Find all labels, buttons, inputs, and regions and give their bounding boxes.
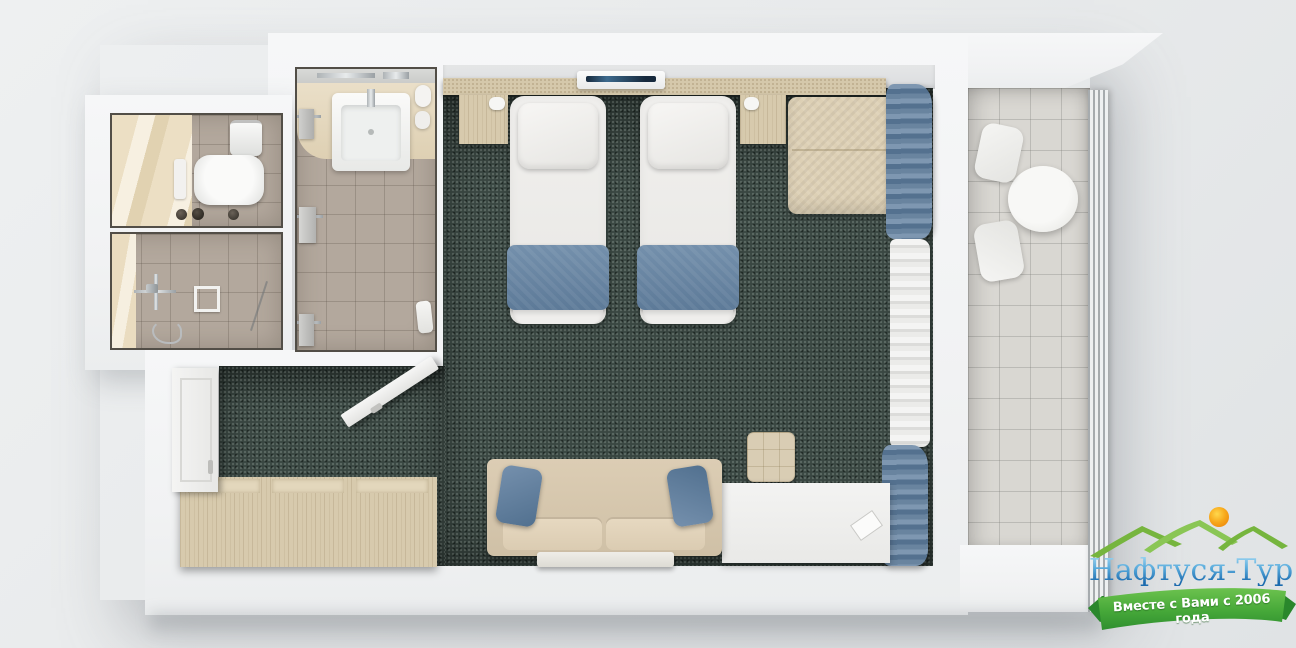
wall-balcony-bottom — [960, 545, 1092, 612]
air-conditioner — [577, 71, 665, 89]
toilet-paper-holder — [174, 159, 186, 199]
toilet-cistern — [230, 120, 262, 156]
faucet — [367, 89, 375, 107]
nightstand-left — [459, 95, 508, 144]
towel — [299, 314, 314, 346]
toilet-bowl — [194, 155, 264, 205]
wardrobe-shelf-top — [272, 479, 344, 493]
basin-drain — [368, 129, 374, 135]
shower-wall-panel — [112, 234, 136, 348]
curtain-blue-upper — [886, 84, 932, 239]
toiletry-jar — [176, 209, 187, 220]
shower-glass-door — [250, 281, 268, 331]
floorplan-canvas: Нафтуся-Тур Вместе с Вами с 2006 года — [0, 0, 1296, 648]
rolled-towel — [415, 111, 430, 129]
armchair — [788, 97, 895, 214]
floor-drain — [194, 286, 220, 312]
desk — [722, 483, 890, 563]
shower-mixer — [146, 284, 158, 293]
twin-bed-left — [510, 96, 606, 324]
sun-icon — [1209, 507, 1229, 527]
wardrobe — [180, 477, 437, 567]
towel — [299, 109, 314, 139]
sofa-pillow-right — [666, 464, 715, 528]
rolled-towel — [415, 85, 431, 107]
logo-brand-title: Нафтуся-Тур — [1086, 556, 1296, 586]
toiletry-jar — [228, 209, 239, 220]
logo-ribbon: Вместе с Вами с 2006 года — [1086, 584, 1296, 642]
blanket — [507, 245, 609, 310]
towel — [299, 207, 316, 243]
sofa — [487, 459, 722, 556]
phone — [744, 97, 759, 110]
ottoman — [747, 432, 795, 482]
armchair-seam — [792, 149, 891, 151]
ground-shadow — [150, 613, 1100, 639]
kettle — [489, 97, 505, 110]
curtain-sheer — [890, 239, 930, 447]
pillow — [648, 103, 728, 169]
pillow — [518, 103, 598, 169]
hand-shower-hose — [152, 320, 182, 344]
wardrobe-shelf-top — [356, 479, 428, 493]
wc-room — [110, 113, 283, 228]
coffee-table — [537, 552, 674, 567]
blanket — [637, 245, 739, 310]
bed-foot — [513, 310, 603, 324]
door-handle — [208, 460, 213, 474]
toiletry-jar — [192, 208, 204, 220]
logo-mountains-sun-icon — [1086, 498, 1296, 558]
bathroom — [295, 67, 437, 352]
shelf-accessory — [383, 72, 409, 79]
balcony-table — [1008, 166, 1078, 232]
naftusya-tour-logo: Нафтуся-Тур Вместе с Вами с 2006 года — [1086, 498, 1296, 648]
shelf-accessory — [317, 73, 375, 78]
shower-room — [110, 232, 283, 350]
bed-foot — [643, 310, 733, 324]
nightstand-right — [740, 95, 786, 144]
ac-vent — [586, 76, 656, 82]
twin-bed-right — [640, 96, 736, 324]
entry-door — [172, 368, 218, 492]
washbasin — [332, 93, 410, 171]
waste-bin — [415, 300, 433, 333]
desk-paper — [850, 510, 883, 541]
